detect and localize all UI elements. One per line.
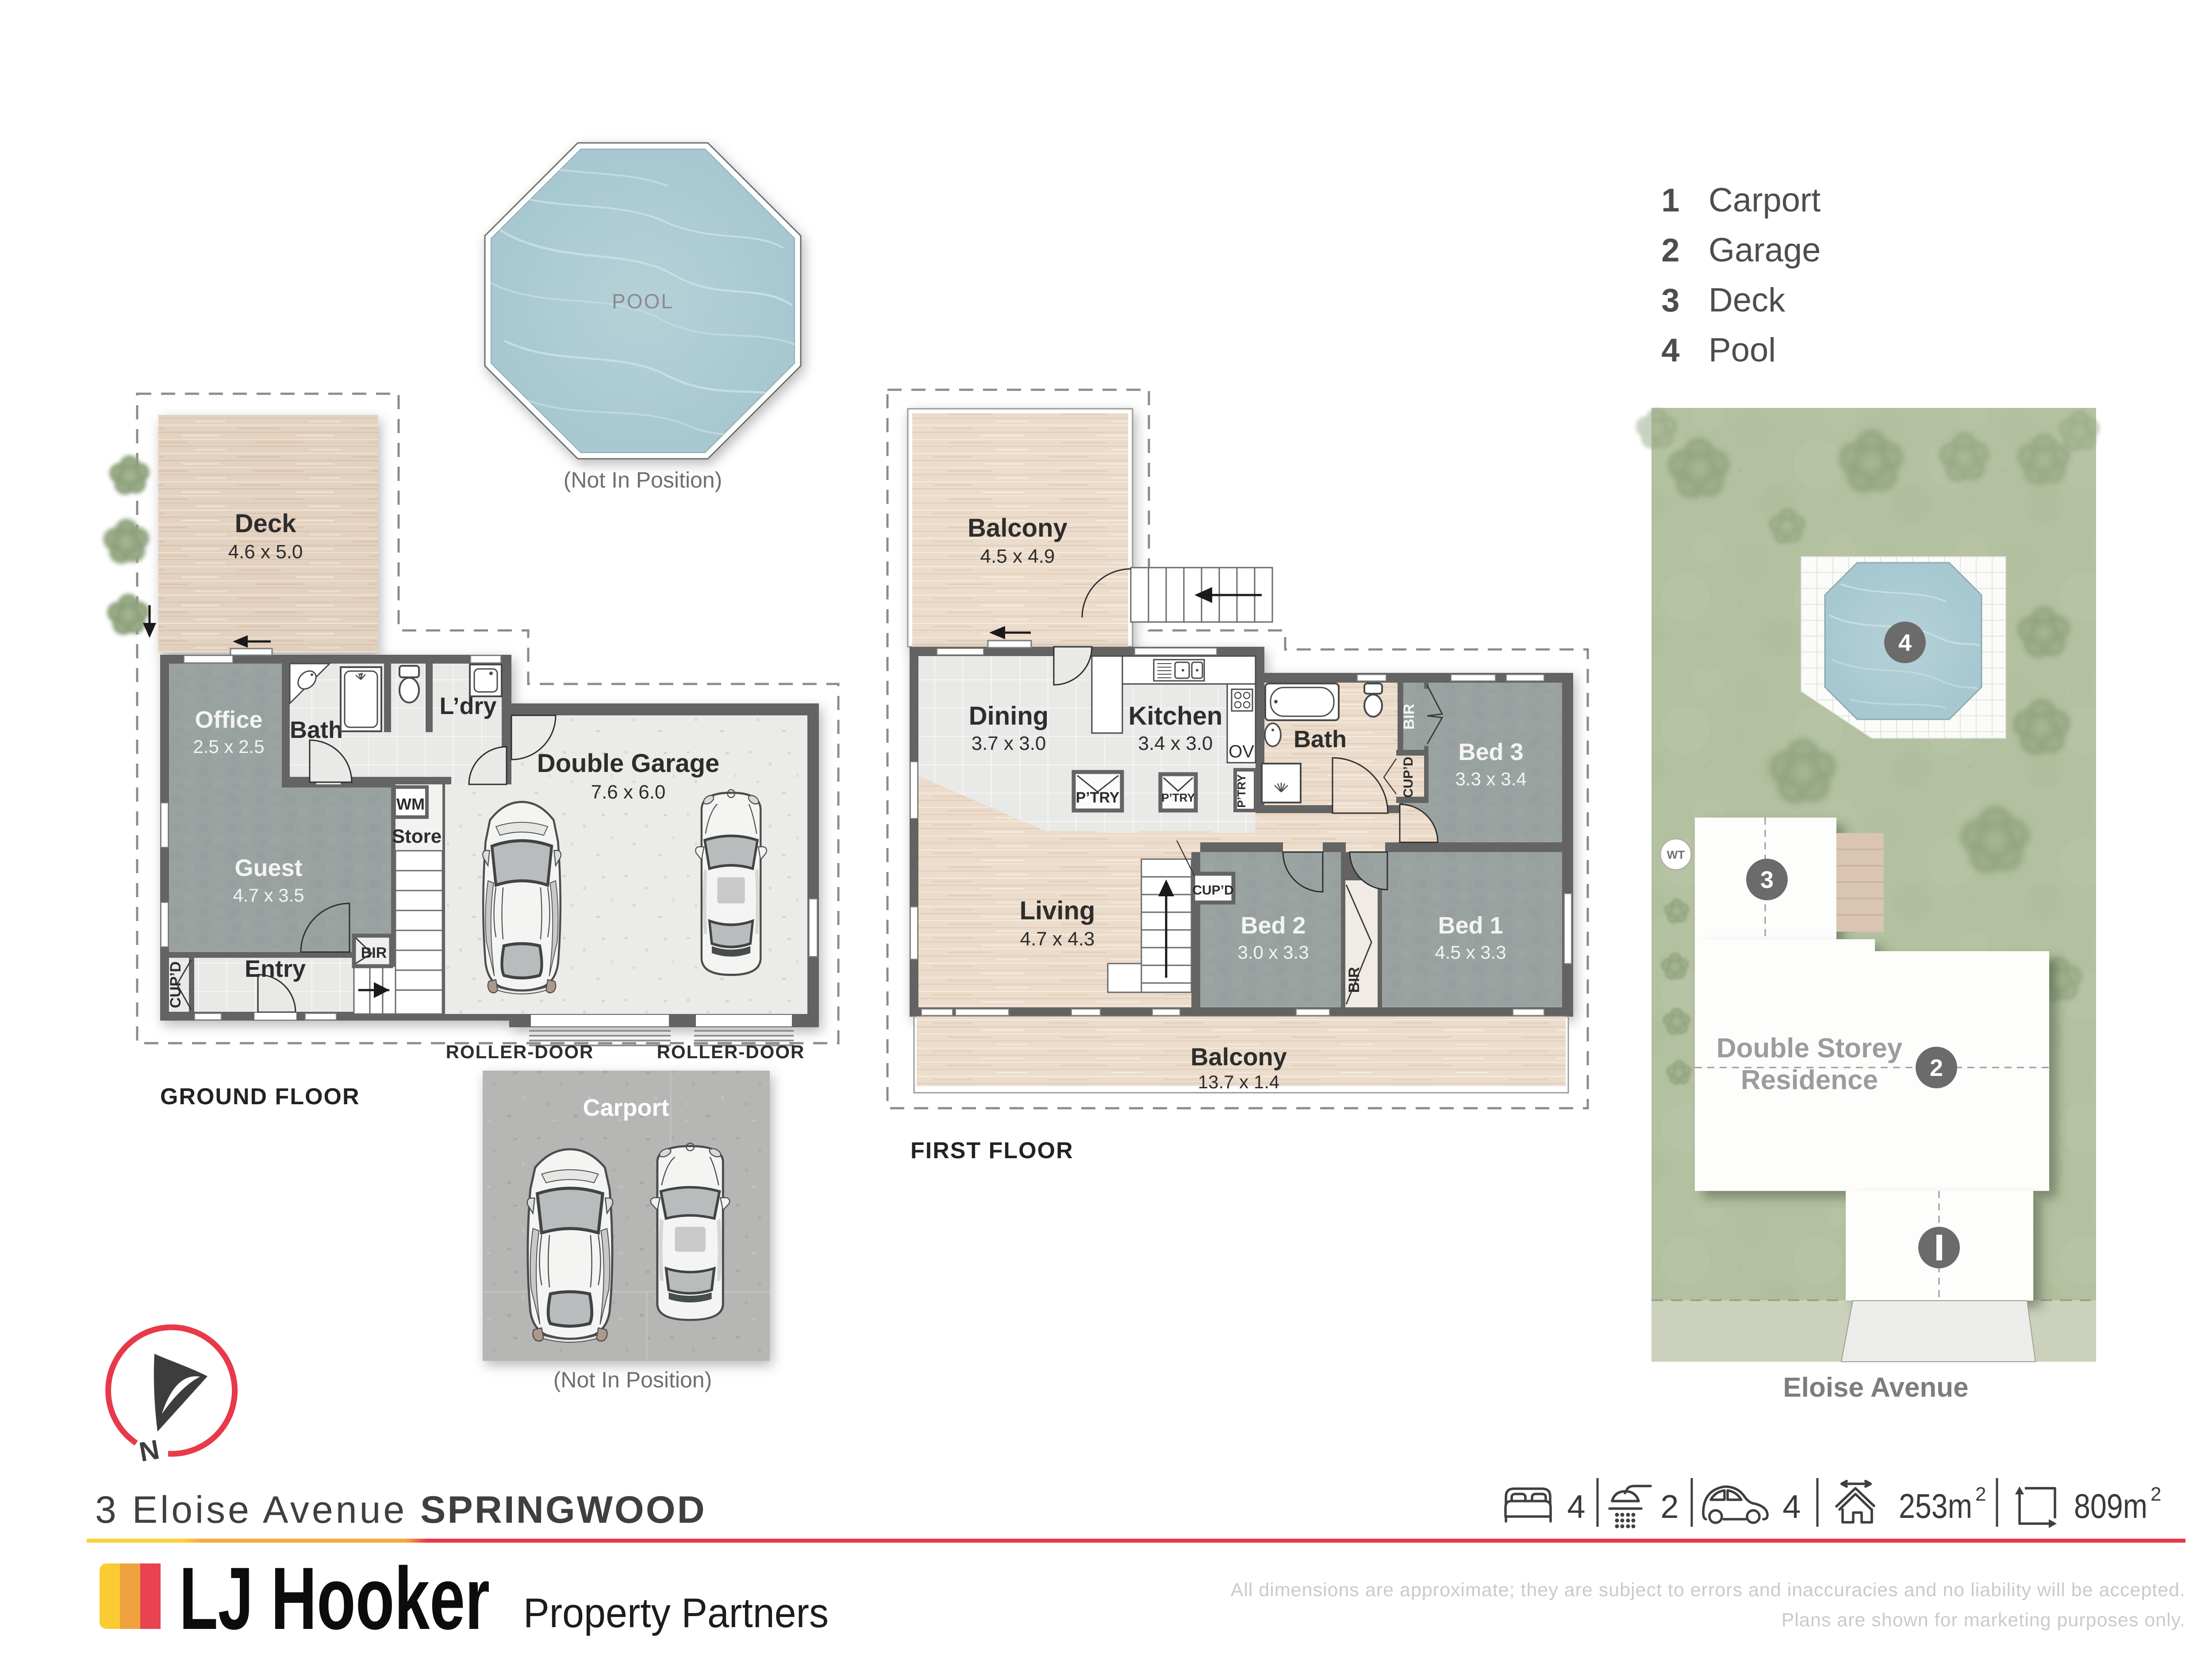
svg-text:3.4 x 3.0: 3.4 x 3.0 bbox=[1138, 733, 1213, 754]
svg-text:BIR: BIR bbox=[1401, 704, 1417, 730]
svg-text:CUP’D: CUP’D bbox=[1401, 757, 1416, 798]
svg-text:4.7 x 3.5: 4.7 x 3.5 bbox=[233, 885, 304, 906]
svg-text:4.6 x 5.0: 4.6 x 5.0 bbox=[228, 541, 303, 563]
svg-text:Eloise Avenue: Eloise Avenue bbox=[1783, 1372, 1968, 1403]
svg-text:2: 2 bbox=[1975, 1483, 1986, 1505]
svg-text:WT: WT bbox=[1667, 848, 1685, 861]
svg-text:Living: Living bbox=[1020, 896, 1095, 925]
svg-text:1: 1 bbox=[1661, 182, 1679, 219]
svg-text:Pool: Pool bbox=[1709, 331, 1776, 369]
svg-text:OV: OV bbox=[1229, 742, 1254, 761]
svg-text:(Not In Position): (Not In Position) bbox=[564, 468, 722, 492]
svg-text:4: 4 bbox=[1567, 1488, 1585, 1525]
svg-text:P’TRY: P’TRY bbox=[1235, 774, 1248, 808]
svg-text:(Not In Position): (Not In Position) bbox=[553, 1367, 712, 1392]
svg-text:LJ Hooker: LJ Hooker bbox=[179, 1549, 490, 1648]
svg-text:3 Eloise AvenueSPRINGWOOD: 3 Eloise AvenueSPRINGWOOD bbox=[95, 1489, 707, 1531]
svg-text:4: 4 bbox=[1898, 630, 1912, 656]
svg-text:BIR: BIR bbox=[1346, 967, 1363, 993]
svg-text:7.6 x 6.0: 7.6 x 6.0 bbox=[591, 781, 666, 803]
svg-text:2: 2 bbox=[1661, 232, 1679, 269]
svg-text:WM: WM bbox=[396, 795, 425, 813]
svg-text:3: 3 bbox=[1661, 282, 1679, 319]
svg-text:3.0 x 3.3: 3.0 x 3.3 bbox=[1237, 942, 1309, 963]
svg-text:3.7 x 3.0: 3.7 x 3.0 bbox=[972, 733, 1046, 754]
svg-text:CUP’D: CUP’D bbox=[1192, 883, 1233, 898]
svg-text:Bath: Bath bbox=[1294, 726, 1347, 753]
svg-text:Deck: Deck bbox=[235, 509, 296, 538]
svg-text:P’TRY: P’TRY bbox=[1076, 789, 1120, 806]
svg-text:3: 3 bbox=[1760, 867, 1774, 893]
svg-text:Entry: Entry bbox=[245, 956, 306, 982]
svg-text:2: 2 bbox=[2151, 1483, 2161, 1505]
svg-text:Bed 1: Bed 1 bbox=[1438, 912, 1503, 939]
svg-text:All dimensions are approximate: All dimensions are approximate; they are… bbox=[1231, 1579, 2185, 1601]
svg-text:Guest: Guest bbox=[234, 855, 302, 881]
svg-text:Balcony: Balcony bbox=[968, 514, 1068, 542]
svg-text:4.5 x 4.9: 4.5 x 4.9 bbox=[980, 545, 1055, 567]
svg-text:Bed 3: Bed 3 bbox=[1458, 739, 1523, 765]
svg-text:GROUND FLOOR: GROUND FLOOR bbox=[160, 1084, 360, 1110]
svg-text:Carport: Carport bbox=[583, 1094, 669, 1121]
svg-text:Residence: Residence bbox=[1741, 1065, 1878, 1095]
svg-text:4.7 x 4.3: 4.7 x 4.3 bbox=[1020, 928, 1095, 950]
svg-text:Bath: Bath bbox=[290, 717, 343, 743]
svg-text:Store: Store bbox=[392, 826, 442, 847]
svg-text:Kitchen: Kitchen bbox=[1129, 702, 1223, 730]
svg-text:4: 4 bbox=[1782, 1488, 1801, 1525]
svg-text:Bed 2: Bed 2 bbox=[1240, 912, 1306, 939]
svg-text:BIR: BIR bbox=[361, 945, 387, 961]
svg-text:POOL: POOL bbox=[612, 290, 674, 313]
svg-text:ROLLER-DOOR: ROLLER-DOOR bbox=[657, 1041, 805, 1062]
svg-text:253m: 253m bbox=[1899, 1486, 1972, 1525]
svg-text:2.5 x 2.5: 2.5 x 2.5 bbox=[193, 736, 264, 757]
svg-text:Plans are shown for marketing: Plans are shown for marketing purposes o… bbox=[1782, 1609, 2185, 1631]
svg-text:Dining: Dining bbox=[969, 702, 1048, 730]
svg-text:Property Partners: Property Partners bbox=[523, 1590, 829, 1636]
svg-text:P’TRY: P’TRY bbox=[1161, 791, 1195, 804]
svg-text:3.3 x 3.4: 3.3 x 3.4 bbox=[1455, 768, 1526, 789]
svg-text:Deck: Deck bbox=[1709, 281, 1786, 319]
svg-text:Office: Office bbox=[195, 707, 262, 733]
svg-text:809m: 809m bbox=[2074, 1486, 2147, 1525]
svg-text:FIRST FLOOR: FIRST FLOOR bbox=[910, 1138, 1074, 1164]
svg-text:13.7 x 1.4: 13.7 x 1.4 bbox=[1198, 1071, 1279, 1092]
svg-text:2: 2 bbox=[1930, 1055, 1943, 1081]
svg-text:Garage: Garage bbox=[1709, 231, 1821, 269]
svg-text:ROLLER-DOOR: ROLLER-DOOR bbox=[446, 1041, 594, 1062]
svg-text:Carport: Carport bbox=[1709, 181, 1820, 219]
svg-text:2: 2 bbox=[1660, 1488, 1678, 1525]
svg-text:4.5 x 3.3: 4.5 x 3.3 bbox=[1435, 942, 1506, 963]
svg-text:Balcony: Balcony bbox=[1190, 1043, 1287, 1071]
svg-text:CUP’D: CUP’D bbox=[167, 961, 184, 1008]
svg-text:Double Storey: Double Storey bbox=[1717, 1033, 1903, 1064]
svg-text:4: 4 bbox=[1661, 332, 1679, 369]
svg-text:Double Garage: Double Garage bbox=[537, 749, 720, 778]
